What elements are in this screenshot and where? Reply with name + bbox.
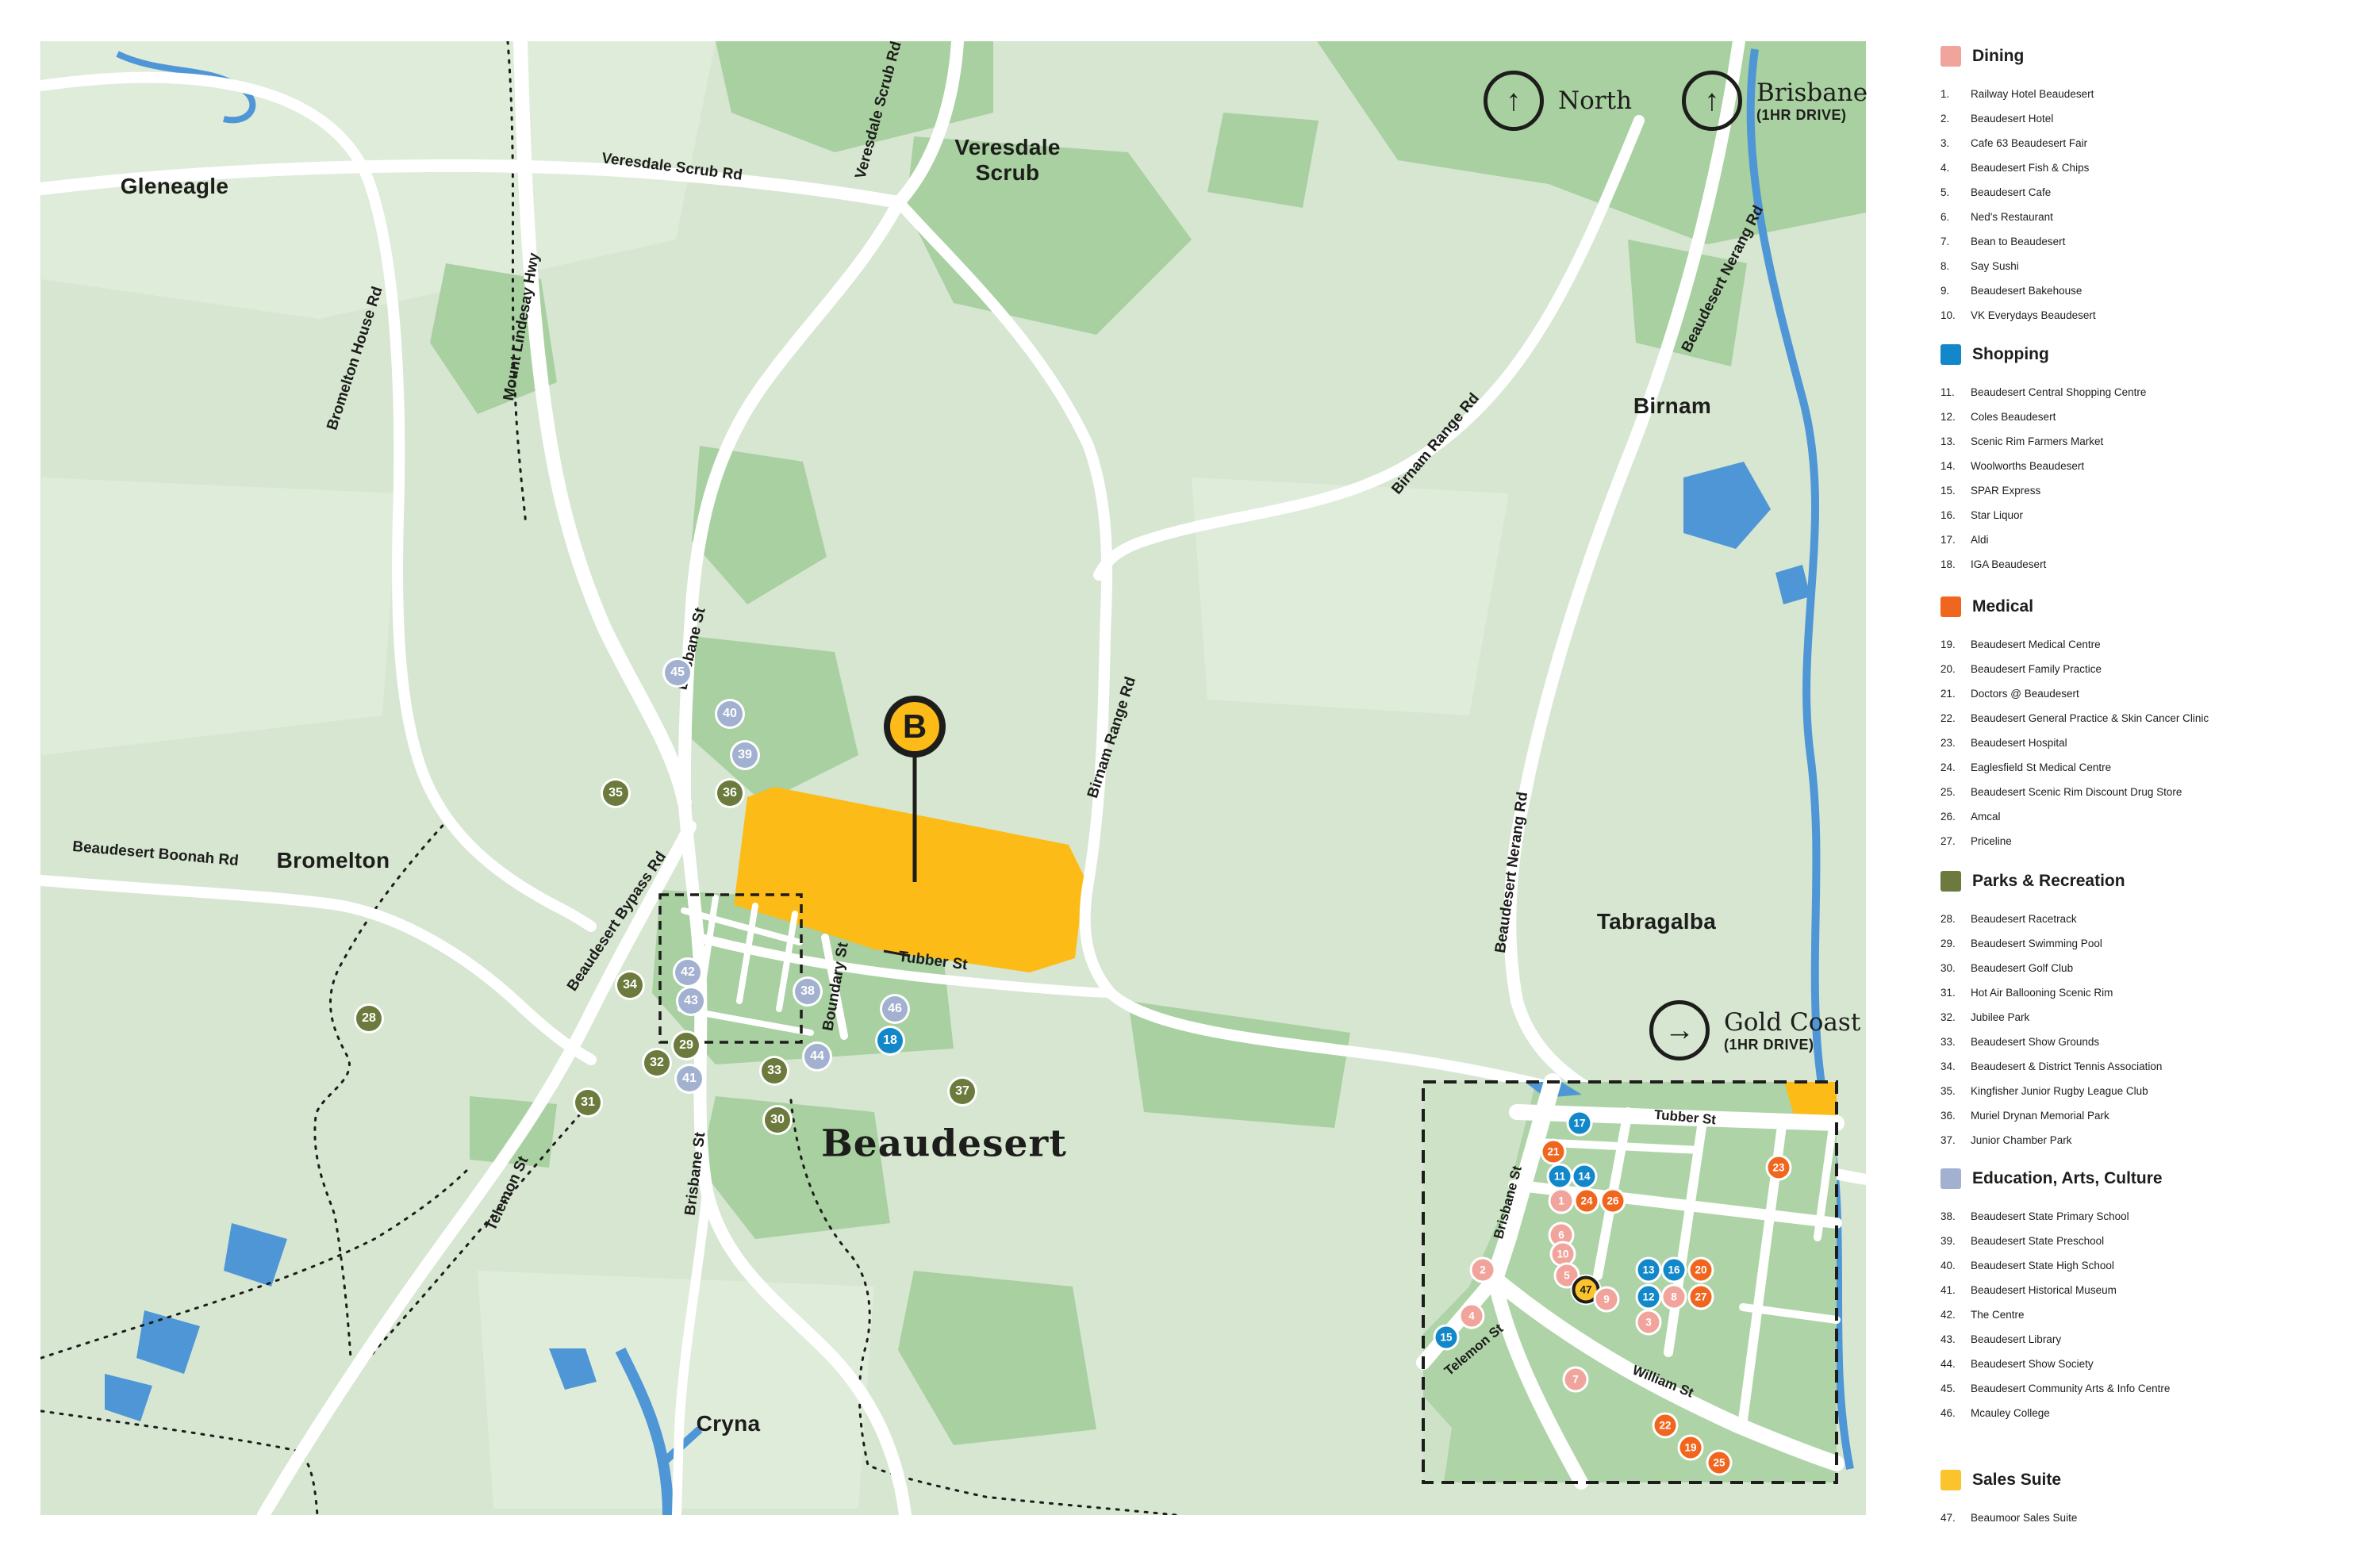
legend-item: 16.Star Liquor <box>1940 503 2369 527</box>
legend-swatch <box>1940 871 1961 892</box>
legend-item-number: 5. <box>1940 186 1971 198</box>
legend-item-label: Beaudesert Community Arts & Info Centre <box>1971 1383 2170 1394</box>
legend-item: 35.Kingfisher Junior Rugby League Club <box>1940 1079 2369 1103</box>
legend-section-parks-recreation: Parks & Recreation28.Beaudesert Racetrac… <box>1940 871 2369 1153</box>
legend-item-number: 13. <box>1940 435 1971 447</box>
legend-item-number: 35. <box>1940 1085 1971 1097</box>
legend-items: 11.Beaudesert Central Shopping Centre12.… <box>1940 380 2369 577</box>
legend-item-number: 2. <box>1940 113 1971 125</box>
legend-item-number: 17. <box>1940 534 1971 546</box>
legend-item: 6.Ned's Restaurant <box>1940 205 2369 229</box>
legend-item-label: Beaudesert State Primary School <box>1971 1210 2129 1222</box>
legend-item: 2.Beaudesert Hotel <box>1940 106 2369 131</box>
legend-item-label: Scenic Rim Farmers Market <box>1971 435 2103 447</box>
legend-item-number: 39. <box>1940 1235 1971 1247</box>
legend-item-number: 6. <box>1940 211 1971 223</box>
legend-item-label: Beaudesert Show Grounds <box>1971 1036 2099 1048</box>
legend-item: 45.Beaudesert Community Arts & Info Cent… <box>1940 1376 2369 1401</box>
legend-section-title-row: Sales Suite <box>1940 1470 2369 1490</box>
legend-item-label: Hot Air Ballooning Scenic Rim <box>1971 987 2113 999</box>
legend-item-label: Beaudesert General Practice & Skin Cance… <box>1971 712 2209 724</box>
legend-item-number: 38. <box>1940 1210 1971 1222</box>
legend-item-number: 28. <box>1940 913 1971 925</box>
legend-item-number: 45. <box>1940 1383 1971 1394</box>
legend-item: 20.Beaudesert Family Practice <box>1940 657 2369 681</box>
legend-item-number: 43. <box>1940 1333 1971 1345</box>
legend-item-number: 29. <box>1940 938 1971 949</box>
legend-item: 17.Aldi <box>1940 527 2369 552</box>
legend-items: 38.Beaudesert State Primary School39.Bea… <box>1940 1204 2369 1425</box>
legend-item-label: Beaudesert Swimming Pool <box>1971 938 2102 949</box>
legend-item-number: 23. <box>1940 737 1971 749</box>
legend-item: 13.Scenic Rim Farmers Market <box>1940 429 2369 454</box>
legend-item-label: Mcauley College <box>1971 1407 2050 1419</box>
legend-section-title: Education, Arts, Culture <box>1972 1169 2163 1188</box>
legend-item-label: Beaudesert State High School <box>1971 1260 2114 1271</box>
legend-item-number: 30. <box>1940 962 1971 974</box>
legend-item-label: Doctors @ Beaudesert <box>1971 688 2079 700</box>
legend-item-number: 33. <box>1940 1036 1971 1048</box>
legend-item: 9.Beaudesert Bakehouse <box>1940 278 2369 303</box>
legend-section-title-row: Shopping <box>1940 344 2369 365</box>
legend-item: 12.Coles Beaudesert <box>1940 405 2369 429</box>
legend-item: 33.Beaudesert Show Grounds <box>1940 1030 2369 1054</box>
legend-item-number: 12. <box>1940 411 1971 423</box>
legend-item: 26.Amcal <box>1940 804 2369 829</box>
legend-item: 30.Beaudesert Golf Club <box>1940 956 2369 980</box>
legend-item: 46.Mcauley College <box>1940 1401 2369 1425</box>
legend-section-title-row: Dining <box>1940 46 2369 67</box>
legend-item: 5.Beaudesert Cafe <box>1940 180 2369 205</box>
legend-item-label: Beaudesert State Preschool <box>1971 1235 2104 1247</box>
legend-swatch <box>1940 596 1961 617</box>
beaudesert-locality-map-page: GleneagleVeresdale ScrubBirnamBromeltonT… <box>0 0 2380 1561</box>
legend-section-title-row: Parks & Recreation <box>1940 871 2369 892</box>
legend-section-sales-suite: Sales Suite47.Beaumoor Sales Suite <box>1940 1470 2369 1530</box>
legend-item-label: Beaudesert Fish & Chips <box>1971 162 2089 174</box>
legend-item: 44.Beaudesert Show Society <box>1940 1352 2369 1376</box>
legend-item: 18.IGA Beaudesert <box>1940 552 2369 577</box>
legend-item-label: Jubilee Park <box>1971 1011 2029 1023</box>
legend-item: 4.Beaudesert Fish & Chips <box>1940 155 2369 180</box>
legend-item-label: Beaudesert Library <box>1971 1333 2061 1345</box>
legend-item: 36.Muriel Drynan Memorial Park <box>1940 1103 2369 1128</box>
legend-item: 39.Beaudesert State Preschool <box>1940 1229 2369 1253</box>
legend-item-label: Woolworths Beaudesert <box>1971 460 2084 472</box>
legend-item-number: 19. <box>1940 639 1971 650</box>
legend-item: 21.Doctors @ Beaudesert <box>1940 681 2369 706</box>
legend-item-number: 11. <box>1940 386 1971 398</box>
legend-item-label: Coles Beaudesert <box>1971 411 2056 423</box>
legend-item: 47.Beaumoor Sales Suite <box>1940 1505 2369 1530</box>
legend-item-label: Beaudesert Medical Centre <box>1971 639 2101 650</box>
legend-item: 40.Beaudesert State High School <box>1940 1253 2369 1278</box>
legend-item-label: Junior Chamber Park <box>1971 1134 2072 1146</box>
legend-item: 14.Woolworths Beaudesert <box>1940 454 2369 478</box>
legend-item-label: The Centre <box>1971 1309 2025 1321</box>
legend-item: 28.Beaudesert Racetrack <box>1940 907 2369 931</box>
legend-item-number: 36. <box>1940 1110 1971 1122</box>
legend-item: 23.Beaudesert Hospital <box>1940 731 2369 755</box>
legend-section-title: Shopping <box>1972 345 2049 364</box>
legend-item-number: 34. <box>1940 1060 1971 1072</box>
legend-item-number: 32. <box>1940 1011 1971 1023</box>
legend-item-number: 46. <box>1940 1407 1971 1419</box>
legend-item: 22.Beaudesert General Practice & Skin Ca… <box>1940 706 2369 731</box>
legend-item-number: 7. <box>1940 236 1971 247</box>
legend-item: 32.Jubilee Park <box>1940 1005 2369 1030</box>
legend-swatch <box>1940 344 1961 365</box>
legend-section-title-row: Medical <box>1940 596 2369 617</box>
legend-item: 1.Railway Hotel Beaudesert <box>1940 82 2369 106</box>
legend-item-number: 4. <box>1940 162 1971 174</box>
legend-item-label: Bean to Beaudesert <box>1971 236 2065 247</box>
legend-item-label: Cafe 63 Beaudesert Fair <box>1971 137 2087 149</box>
legend-item-number: 44. <box>1940 1358 1971 1370</box>
legend-items: 47.Beaumoor Sales Suite <box>1940 1505 2369 1530</box>
legend-item-label: Eaglesfield St Medical Centre <box>1971 761 2111 773</box>
legend-item-label: VK Everydays Beaudesert <box>1971 309 2096 321</box>
legend-item-number: 16. <box>1940 509 1971 521</box>
legend-item: 42.The Centre <box>1940 1302 2369 1327</box>
legend-item-number: 18. <box>1940 558 1971 570</box>
legend-item-label: Beaudesert Cafe <box>1971 186 2051 198</box>
legend-items: 28.Beaudesert Racetrack29.Beaudesert Swi… <box>1940 907 2369 1153</box>
legend-item-label: SPAR Express <box>1971 485 2040 497</box>
legend-item: 3.Cafe 63 Beaudesert Fair <box>1940 131 2369 155</box>
legend-item-number: 40. <box>1940 1260 1971 1271</box>
legend-items: 1.Railway Hotel Beaudesert2.Beaudesert H… <box>1940 82 2369 328</box>
legend-item-number: 41. <box>1940 1284 1971 1296</box>
legend-item-label: Beaudesert Family Practice <box>1971 663 2102 675</box>
legend-item-label: Beaudesert Racetrack <box>1971 913 2077 925</box>
legend-item: 43.Beaudesert Library <box>1940 1327 2369 1352</box>
legend-item-label: Beaudesert Show Society <box>1971 1358 2094 1370</box>
legend-item-number: 10. <box>1940 309 1971 321</box>
legend-item-number: 20. <box>1940 663 1971 675</box>
legend-item-number: 14. <box>1940 460 1971 472</box>
legend-swatch <box>1940 1168 1961 1189</box>
legend-item-label: Aldi <box>1971 534 1989 546</box>
legend-item: 25.Beaudesert Scenic Rim Discount Drug S… <box>1940 780 2369 804</box>
legend-item: 41.Beaudesert Historical Museum <box>1940 1278 2369 1302</box>
legend-items: 19.Beaudesert Medical Centre20.Beaudeser… <box>1940 632 2369 853</box>
legend-item-label: Ned's Restaurant <box>1971 211 2053 223</box>
legend-item-number: 42. <box>1940 1309 1971 1321</box>
legend-section-shopping: Shopping11.Beaudesert Central Shopping C… <box>1940 344 2369 577</box>
legend-item-number: 21. <box>1940 688 1971 700</box>
legend-item: 29.Beaudesert Swimming Pool <box>1940 931 2369 956</box>
legend-swatch <box>1940 1470 1961 1490</box>
legend-item-number: 15. <box>1940 485 1971 497</box>
legend-item-label: Beaudesert Central Shopping Centre <box>1971 386 2146 398</box>
legend-section-title-row: Education, Arts, Culture <box>1940 1168 2369 1189</box>
legend-item: 19.Beaudesert Medical Centre <box>1940 632 2369 657</box>
legend-section-dining: Dining1.Railway Hotel Beaudesert2.Beaude… <box>1940 46 2369 328</box>
legend-item-label: Priceline <box>1971 835 2012 847</box>
legend-item-number: 25. <box>1940 786 1971 798</box>
legend-swatch <box>1940 46 1961 67</box>
legend-item-number: 22. <box>1940 712 1971 724</box>
legend-item-label: Beaudesert Historical Museum <box>1971 1284 2117 1296</box>
legend-item-label: Beaudesert Hospital <box>1971 737 2067 749</box>
legend-item-label: IGA Beaudesert <box>1971 558 2046 570</box>
legend-section-title: Dining <box>1972 47 2024 66</box>
legend-item: 8.Say Sushi <box>1940 254 2369 278</box>
legend-item-number: 1. <box>1940 88 1971 100</box>
legend-item-label: Beaudesert Golf Club <box>1971 962 2073 974</box>
legend-item-number: 31. <box>1940 987 1971 999</box>
legend-item: 31.Hot Air Ballooning Scenic Rim <box>1940 980 2369 1005</box>
legend-item: 10.VK Everydays Beaudesert <box>1940 303 2369 328</box>
legend-section-title: Medical <box>1972 597 2033 616</box>
legend-item-label: Say Sushi <box>1971 260 2019 272</box>
legend-item-number: 24. <box>1940 761 1971 773</box>
legend-item-label: Beaudesert Hotel <box>1971 113 2053 125</box>
inset-map <box>1423 1082 1837 1482</box>
legend-section-title: Parks & Recreation <box>1972 872 2125 891</box>
legend-item-number: 26. <box>1940 811 1971 823</box>
legend-section-medical: Medical19.Beaudesert Medical Centre20.Be… <box>1940 596 2369 853</box>
legend-item-label: Star Liquor <box>1971 509 2023 521</box>
legend-item: 34.Beaudesert & District Tennis Associat… <box>1940 1054 2369 1079</box>
legend-item-label: Muriel Drynan Memorial Park <box>1971 1110 2109 1122</box>
legend-item: 11.Beaudesert Central Shopping Centre <box>1940 380 2369 405</box>
legend-item-number: 47. <box>1940 1512 1971 1524</box>
legend-item-number: 27. <box>1940 835 1971 847</box>
legend-item-label: Amcal <box>1971 811 2001 823</box>
legend-item-label: Kingfisher Junior Rugby League Club <box>1971 1085 2148 1097</box>
legend-item-number: 37. <box>1940 1134 1971 1146</box>
legend-item: 7.Bean to Beaudesert <box>1940 229 2369 254</box>
legend-item-label: Beaudesert Scenic Rim Discount Drug Stor… <box>1971 786 2182 798</box>
legend-item-number: 9. <box>1940 285 1971 297</box>
legend-item-label: Beaudesert & District Tennis Association <box>1971 1060 2162 1072</box>
legend-item-number: 3. <box>1940 137 1971 149</box>
legend-section-title: Sales Suite <box>1972 1471 2061 1490</box>
legend-item-number: 8. <box>1940 260 1971 272</box>
legend-section-education-arts-culture: Education, Arts, Culture38.Beaudesert St… <box>1940 1168 2369 1425</box>
legend-item: 15.SPAR Express <box>1940 478 2369 503</box>
legend-item: 24.Eaglesfield St Medical Centre <box>1940 755 2369 780</box>
legend-item: 27.Priceline <box>1940 829 2369 853</box>
legend-item-label: Railway Hotel Beaudesert <box>1971 88 2094 100</box>
legend-item: 37.Junior Chamber Park <box>1940 1128 2369 1153</box>
site-pin: B <box>884 696 946 757</box>
legend-item-label: Beaumoor Sales Suite <box>1971 1512 2077 1524</box>
legend-item-label: Beaudesert Bakehouse <box>1971 285 2082 297</box>
legend-item: 38.Beaudesert State Primary School <box>1940 1204 2369 1229</box>
